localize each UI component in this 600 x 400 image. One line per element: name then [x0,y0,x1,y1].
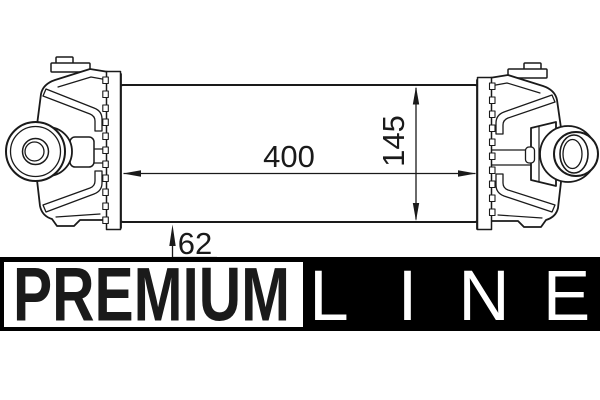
line-letter-i: I [398,257,418,336]
crimp-tooth [103,217,109,224]
right-pipe-notch [526,147,535,163]
intercooler-technical-drawing: 400 145 62 PREMIUM L I N E [0,0,600,400]
crimp-tooth [490,97,496,104]
crimp-tooth [490,111,496,118]
crimp-tooth [103,133,109,140]
dim-width-label: 400 [263,139,315,174]
crimp-tooth [103,175,109,182]
crimp-tooth [103,147,109,154]
line-letter-n: N [458,257,509,336]
left-crimp-strip [103,72,121,230]
line-letter-l: L [309,257,349,336]
crimp-tooth [103,119,109,126]
dim-height-label: 145 [376,115,411,167]
crimp-tooth [103,91,109,98]
crimp-tooth [103,203,109,210]
crimp-tooth [490,125,496,132]
crimp-tooth [103,161,109,168]
right-pipe-port [526,122,599,186]
crimp-tooth [490,195,496,202]
crimp-tooth [490,139,496,146]
left-tank [6,57,121,230]
crimp-tooth [103,77,109,84]
crimp-tooth [490,153,496,160]
crimp-tooth [103,105,109,112]
left-pipe-boss [70,137,94,167]
dim-arrow-up-depth [169,225,175,247]
product-image: 400 145 62 PREMIUM L I N E [0,0,600,400]
crimp-tooth [490,209,496,216]
crimp-tooth [490,181,496,188]
crimp-tooth [103,189,109,196]
brand-logo: PREMIUM L I N E [0,253,600,338]
right-tank [477,63,598,230]
crimp-tooth [490,167,496,174]
crimp-tooth [490,83,496,90]
right-pipe-bore-inner [563,140,582,169]
left-pipe-bore-inner [25,142,44,161]
premium-label: PREMIUM [13,253,290,338]
line-letter-e: E [543,257,590,336]
